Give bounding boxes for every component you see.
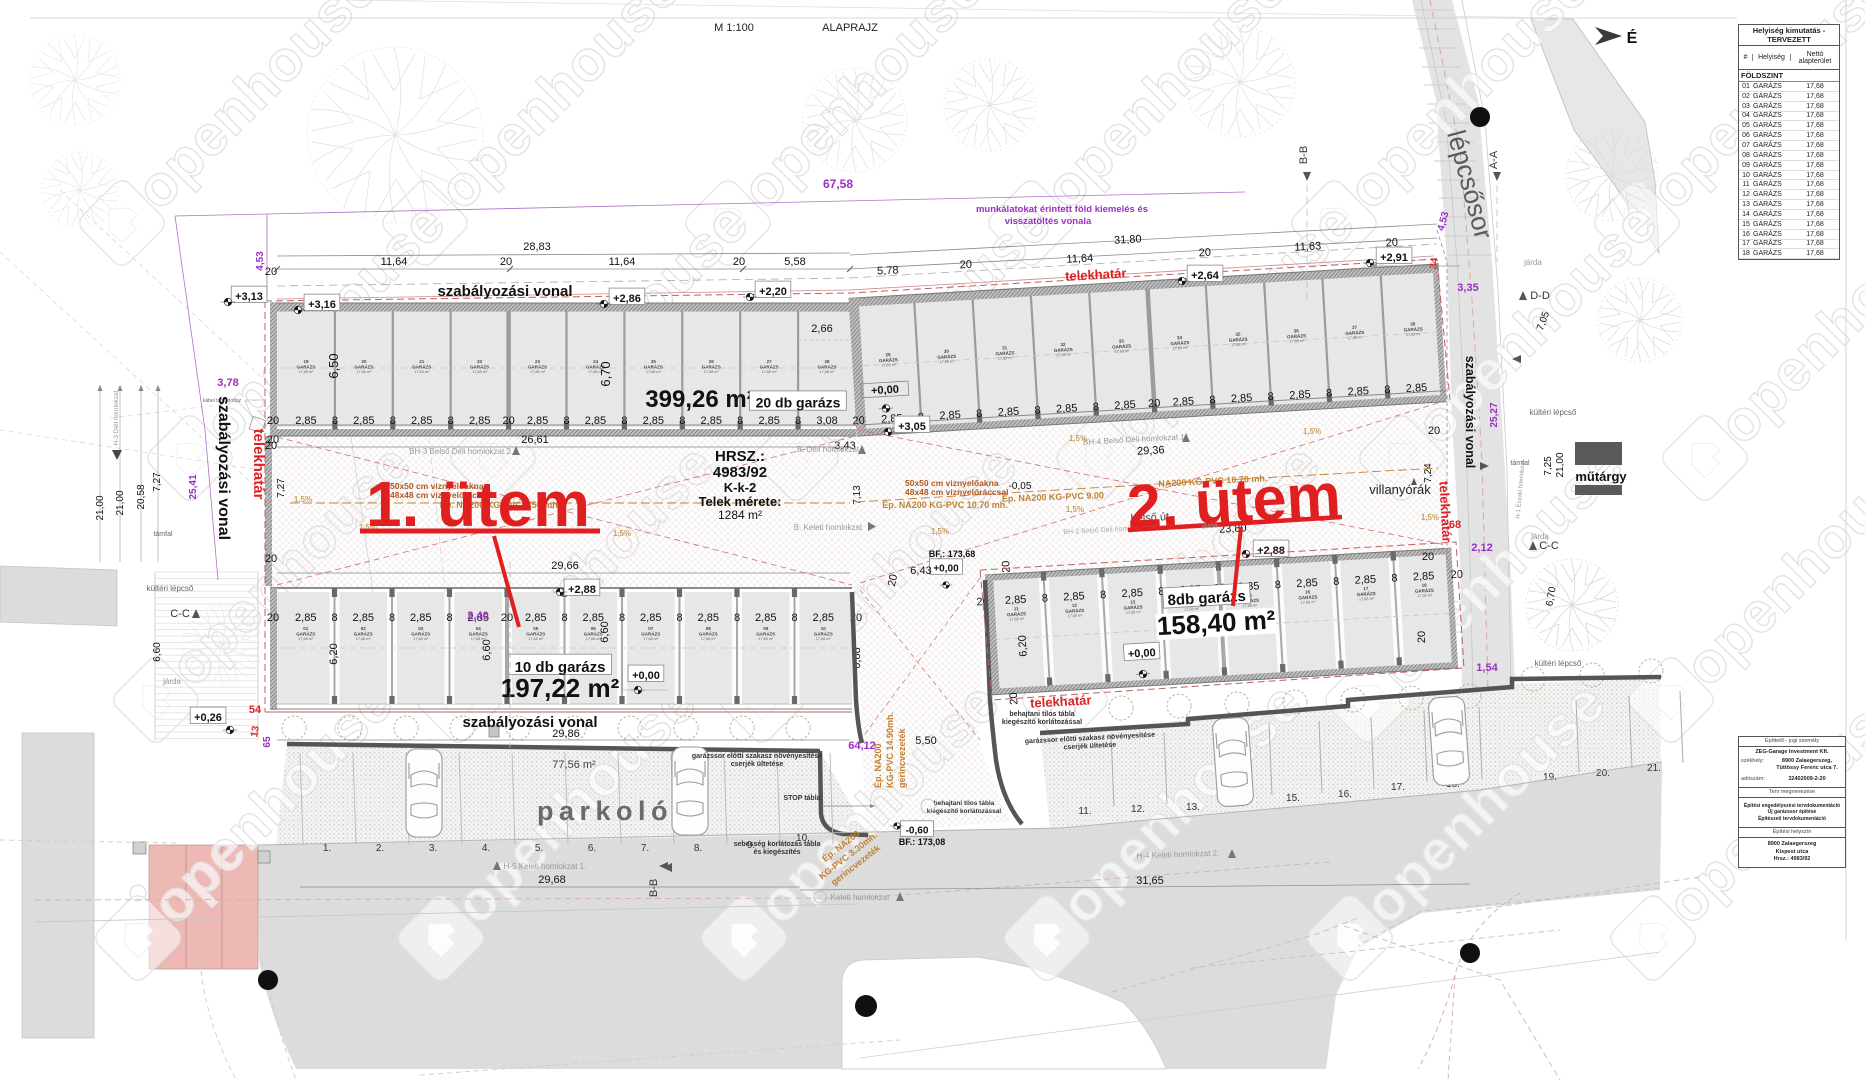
- svg-text:54: 54: [249, 704, 262, 716]
- svg-text:GARÁZS: GARÁZS: [412, 364, 431, 370]
- svg-text:01: 01: [303, 626, 309, 631]
- svg-text:telekhatár: telekhatár: [1030, 692, 1092, 710]
- svg-text:17,68 m²: 17,68 m²: [816, 637, 832, 641]
- svg-text:GARÁZS: GARÁZS: [644, 364, 663, 370]
- svg-text:GARÁZS: GARÁZS: [526, 631, 545, 637]
- svg-text:6,50: 6,50: [326, 353, 341, 378]
- svg-text:3,35: 3,35: [1457, 282, 1478, 294]
- svg-text:2,85: 2,85: [410, 612, 431, 624]
- svg-text:GARÁZS: GARÁZS: [756, 631, 775, 637]
- svg-text:7,24: 7,24: [1423, 463, 1434, 483]
- svg-text:2,85: 2,85: [295, 415, 316, 427]
- svg-text:64,12: 64,12: [848, 740, 876, 752]
- svg-text:3,08: 3,08: [816, 415, 837, 427]
- svg-text:20: 20: [1416, 631, 1428, 643]
- svg-text:1,54: 1,54: [1476, 662, 1498, 674]
- svg-text:17: 17: [1363, 586, 1369, 591]
- svg-text:+3,16: +3,16: [308, 299, 336, 311]
- svg-text:32: 32: [1060, 342, 1066, 347]
- svg-text:17,68 m²: 17,68 m²: [298, 370, 314, 374]
- svg-text:+0,00: +0,00: [1128, 647, 1156, 661]
- svg-text:GARÁZS: GARÁZS: [760, 364, 779, 370]
- svg-text:34: 34: [1428, 257, 1441, 270]
- svg-text:BF.: 173,68: BF.: 173,68: [929, 549, 976, 559]
- svg-text:13: 13: [1130, 599, 1136, 604]
- svg-text:B. Keleti homlokzat: B. Keleti homlokzat: [794, 523, 863, 532]
- svg-text:11.: 11.: [1078, 806, 1091, 817]
- svg-text:B-B: B-B: [1298, 146, 1310, 164]
- svg-text:8: 8: [1093, 401, 1100, 413]
- svg-text:behajtani tilos tábla: behajtani tilos tábla: [1009, 711, 1074, 718]
- svg-text:2,85: 2,85: [1354, 574, 1376, 587]
- svg-text:30: 30: [944, 349, 950, 354]
- svg-text:kültéri lépcső: kültéri lépcső: [1535, 659, 1582, 668]
- svg-text:-0,05: -0,05: [1009, 481, 1032, 492]
- svg-text:8: 8: [679, 415, 685, 427]
- svg-text:Ép. NA200: Ép. NA200: [873, 743, 883, 788]
- svg-text:21: 21: [419, 359, 425, 364]
- svg-text:GARÁZS: GARÁZS: [354, 631, 373, 637]
- svg-text:20: 20: [959, 259, 972, 272]
- svg-text:2,85: 2,85: [1172, 395, 1194, 408]
- svg-text:8: 8: [734, 612, 740, 624]
- svg-text:szabályozási vonal: szabályozási vonal: [462, 714, 597, 731]
- svg-text:20: 20: [733, 256, 745, 268]
- svg-text:07: 07: [648, 626, 654, 631]
- svg-text:11,63: 11,63: [1294, 240, 1321, 253]
- svg-text:11,64: 11,64: [609, 256, 636, 268]
- svg-text:2,85: 2,85: [1231, 392, 1253, 405]
- svg-text:-0,60: -0,60: [906, 826, 929, 837]
- svg-text:parkoló: parkoló: [537, 796, 673, 826]
- svg-text:GARÁZS: GARÁZS: [814, 631, 833, 637]
- svg-text:5.: 5.: [535, 843, 543, 854]
- svg-text:GARÁZS: GARÁZS: [354, 364, 373, 370]
- svg-text:GARÁZS: GARÁZS: [702, 364, 721, 370]
- svg-text:17.: 17.: [1391, 782, 1405, 793]
- svg-text:67,58: 67,58: [823, 177, 853, 191]
- svg-text:H-5 Keleti homlokzat 1.: H-5 Keleti homlokzat 1.: [504, 862, 587, 871]
- svg-text:telekhatár: telekhatár: [250, 429, 267, 500]
- svg-text:8: 8: [1391, 572, 1398, 584]
- svg-text:6,20: 6,20: [1017, 635, 1030, 657]
- svg-text:2,85: 2,85: [469, 415, 490, 427]
- svg-text:GARÁZS: GARÁZS: [528, 364, 547, 370]
- svg-text:támfal: támfal: [153, 531, 173, 538]
- svg-text:8: 8: [1267, 391, 1274, 403]
- svg-text:2,66: 2,66: [811, 323, 832, 335]
- svg-text:20: 20: [1422, 551, 1434, 563]
- svg-text:6,60: 6,60: [152, 642, 163, 662]
- svg-text:GARÁZS: GARÁZS: [296, 364, 315, 370]
- svg-text:GARÁZS: GARÁZS: [296, 631, 315, 637]
- svg-text:20: 20: [267, 612, 279, 624]
- svg-text:járda: járda: [1530, 532, 1549, 541]
- svg-text:08: 08: [706, 626, 712, 631]
- svg-text:2,85: 2,85: [1406, 382, 1428, 395]
- svg-text:kültéri lépcső: kültéri lépcső: [147, 584, 194, 593]
- svg-text:29: 29: [885, 352, 891, 357]
- svg-text:GARÁZS: GARÁZS: [699, 631, 718, 637]
- svg-text:GARÁZS: GARÁZS: [411, 631, 430, 637]
- svg-text:17,68 m²: 17,68 m²: [414, 370, 430, 374]
- svg-text:13.: 13.: [1186, 802, 1200, 813]
- svg-text:2,12: 2,12: [1471, 542, 1492, 554]
- svg-text:7,25: 7,25: [1543, 456, 1554, 476]
- svg-text:8: 8: [1209, 394, 1216, 406]
- svg-text:4983/92: 4983/92: [713, 464, 767, 481]
- svg-text:29,66: 29,66: [551, 560, 579, 572]
- svg-text:járda: járda: [1201, 523, 1218, 531]
- svg-text:8: 8: [791, 612, 797, 624]
- svg-text:2,85: 2,85: [1063, 590, 1085, 603]
- svg-text:8: 8: [1041, 592, 1048, 604]
- svg-text:GARÁZS: GARÁZS: [818, 364, 837, 370]
- svg-text:20: 20: [265, 266, 277, 278]
- svg-text:38: 38: [1410, 321, 1416, 326]
- svg-text:2,85: 2,85: [1289, 389, 1311, 402]
- svg-text:11,64: 11,64: [1066, 252, 1093, 265]
- svg-text:17,68 m²: 17,68 m²: [643, 637, 659, 641]
- svg-text:6.: 6.: [588, 843, 596, 854]
- svg-text:20: 20: [1198, 247, 1211, 260]
- svg-text:garázssor előtti szakasz növén: garázssor előtti szakasz növényesítése: [692, 753, 822, 760]
- svg-text:1,5%: 1,5%: [613, 529, 631, 538]
- svg-text:20: 20: [1428, 425, 1440, 437]
- svg-text:17,68 m²: 17,68 m²: [646, 370, 662, 374]
- svg-text:29,36: 29,36: [1137, 444, 1165, 457]
- svg-text:7.: 7.: [641, 843, 649, 854]
- svg-text:8: 8: [1034, 404, 1041, 416]
- svg-text:6,60: 6,60: [599, 621, 611, 642]
- svg-text:23: 23: [535, 359, 541, 364]
- svg-text:8: 8: [1333, 576, 1340, 588]
- svg-text:2,85: 2,85: [755, 612, 776, 624]
- svg-text:8: 8: [332, 415, 338, 427]
- svg-text:C-C: C-C: [170, 608, 190, 620]
- svg-text:+2,86: +2,86: [613, 293, 641, 305]
- svg-text:telekhatár: telekhatár: [1065, 265, 1127, 283]
- svg-text:77,56 m²: 77,56 m²: [552, 759, 596, 771]
- svg-text:6,60: 6,60: [481, 639, 493, 660]
- svg-text:2,85: 2,85: [353, 415, 374, 427]
- svg-text:26,61: 26,61: [521, 434, 549, 446]
- svg-text:31: 31: [1002, 345, 1008, 350]
- svg-text:HRSZ.:: HRSZ.:: [715, 448, 765, 465]
- svg-text:2,85: 2,85: [997, 406, 1019, 419]
- svg-text:197,22 m²: 197,22 m²: [501, 673, 620, 703]
- svg-text:2,85: 2,85: [643, 415, 664, 427]
- svg-text:5,50: 5,50: [915, 735, 936, 747]
- svg-text:06: 06: [591, 626, 597, 631]
- svg-text:kültéri lépcső: kültéri lépcső: [1530, 408, 1577, 417]
- svg-text:8: 8: [331, 612, 337, 624]
- svg-text:járda: járda: [162, 677, 181, 686]
- svg-text:2,85: 2,85: [411, 415, 432, 427]
- svg-text:8: 8: [1100, 589, 1107, 601]
- svg-text:2,85: 2,85: [527, 415, 548, 427]
- svg-text:2,85: 2,85: [353, 612, 374, 624]
- svg-text:kiegészítő korlátozással: kiegészítő korlátozással: [1002, 719, 1082, 726]
- svg-text:10: 10: [821, 626, 827, 631]
- svg-text:11,64: 11,64: [381, 256, 408, 268]
- svg-text:8: 8: [676, 612, 682, 624]
- svg-text:Keleti homlokzat: Keleti homlokzat: [831, 893, 890, 902]
- svg-text:21.: 21.: [1647, 763, 1661, 774]
- svg-text:17,68 m²: 17,68 m²: [530, 370, 546, 374]
- svg-text:szabályozási vonal: szabályozási vonal: [437, 283, 572, 300]
- svg-text:8: 8: [619, 612, 625, 624]
- svg-text:+2,88: +2,88: [568, 584, 596, 596]
- svg-text:20: 20: [1000, 560, 1013, 573]
- svg-text:8: 8: [737, 415, 743, 427]
- svg-text:20: 20: [267, 415, 279, 427]
- svg-text:D-D: D-D: [1530, 290, 1550, 302]
- svg-text:17,68 m²: 17,68 m²: [820, 370, 836, 374]
- svg-text:05: 05: [533, 626, 539, 631]
- svg-text:1,5%: 1,5%: [1069, 434, 1087, 443]
- svg-text:25,27: 25,27: [1489, 402, 1500, 427]
- svg-text:16: 16: [1305, 589, 1311, 594]
- svg-text:2,85: 2,85: [585, 415, 606, 427]
- svg-text:+0,00: +0,00: [871, 384, 899, 398]
- svg-text:34: 34: [1177, 335, 1183, 340]
- svg-text:2,85: 2,85: [525, 612, 546, 624]
- svg-text:26: 26: [709, 359, 715, 364]
- svg-text:33: 33: [1119, 338, 1125, 343]
- svg-text:2,85: 2,85: [698, 612, 719, 624]
- svg-text:7,27: 7,27: [276, 478, 287, 498]
- svg-text:20: 20: [886, 573, 900, 587]
- svg-text:2,85: 2,85: [939, 409, 961, 422]
- svg-text:20: 20: [361, 359, 367, 364]
- svg-text:8: 8: [448, 415, 454, 427]
- svg-text:20: 20: [500, 256, 512, 268]
- svg-text:+3,13: +3,13: [235, 291, 263, 303]
- svg-text:villanyórák: villanyórák: [1369, 482, 1431, 497]
- svg-text:BF.: 173,08: BF.: 173,08: [899, 837, 946, 847]
- svg-text:19.: 19.: [1543, 772, 1557, 783]
- svg-text:munkálatokat érintett föld kie: munkálatokat érintett föld kiemelés és: [976, 204, 1148, 215]
- svg-text:03: 03: [418, 626, 424, 631]
- svg-text:3.: 3.: [429, 843, 437, 854]
- svg-text:20: 20: [1148, 397, 1161, 410]
- svg-text:17,68 m²: 17,68 m²: [472, 370, 488, 374]
- svg-text:8: 8: [1384, 384, 1391, 396]
- svg-text:2,85: 2,85: [1114, 399, 1136, 412]
- svg-text:+2,91: +2,91: [1380, 252, 1408, 264]
- svg-text:6,43: 6,43: [910, 565, 931, 577]
- svg-text:19: 19: [303, 359, 309, 364]
- svg-text:2,85: 2,85: [1296, 577, 1318, 590]
- svg-text:A-A: A-A: [1488, 150, 1500, 169]
- svg-text:gerincvezeték: gerincvezeték: [897, 727, 907, 788]
- svg-text:7,27: 7,27: [152, 472, 163, 492]
- svg-text:65: 65: [262, 736, 273, 748]
- svg-text:kiegészítő korlátozással: kiegészítő korlátozással: [927, 808, 1002, 815]
- svg-text:20: 20: [501, 612, 513, 624]
- svg-text:behajtani tilos tábla: behajtani tilos tábla: [934, 800, 995, 807]
- svg-text:ALAPRAJZ: ALAPRAJZ: [822, 22, 878, 34]
- svg-text:2,85: 2,85: [758, 415, 779, 427]
- svg-text:1.: 1.: [323, 843, 331, 854]
- svg-text:17,68 m²: 17,68 m²: [704, 370, 720, 374]
- svg-text:műtárgy: műtárgy: [1575, 469, 1627, 484]
- svg-text:18: 18: [1421, 583, 1427, 588]
- svg-text:telekhatár: telekhatár: [1436, 481, 1454, 543]
- svg-text:és kiegészítés: és kiegészítés: [753, 849, 800, 856]
- svg-text:2,85: 2,85: [1056, 402, 1078, 415]
- svg-text:6,70: 6,70: [598, 361, 613, 386]
- svg-text:2,85: 2,85: [1413, 570, 1435, 583]
- svg-text:11: 11: [1014, 606, 1020, 611]
- svg-text:2,85: 2,85: [813, 612, 834, 624]
- svg-text:B. Déli homlokzat: B. Déli homlokzat: [797, 445, 860, 454]
- svg-text:31,65: 31,65: [1136, 875, 1164, 887]
- svg-text:8: 8: [561, 612, 567, 624]
- svg-text:1,5%: 1,5%: [931, 527, 949, 536]
- svg-text:H-3 Déli homlokzat: H-3 Déli homlokzat: [113, 390, 120, 445]
- svg-text:BH-3 Belső Déli homlokzat 2: BH-3 Belső Déli homlokzat 2: [409, 447, 511, 456]
- svg-text:8: 8: [795, 415, 801, 427]
- svg-text:17,68 m²: 17,68 m²: [356, 370, 372, 374]
- svg-text:27: 27: [767, 359, 773, 364]
- svg-text:22: 22: [477, 359, 483, 364]
- svg-text:+2,88: +2,88: [1257, 545, 1285, 557]
- svg-text:35: 35: [1235, 332, 1241, 337]
- svg-text:17,68 m²: 17,68 m²: [356, 637, 372, 641]
- svg-text:12.: 12.: [1131, 804, 1145, 815]
- svg-text:48x48 cm viznyelőráccsal: 48x48 cm viznyelőráccsal: [905, 487, 1009, 497]
- svg-text:28,83: 28,83: [523, 241, 551, 253]
- svg-text:8: 8: [389, 612, 395, 624]
- svg-text:21,00: 21,00: [1555, 452, 1566, 477]
- svg-text:4.: 4.: [482, 843, 490, 854]
- svg-text:09: 09: [763, 626, 769, 631]
- svg-text:6,70: 6,70: [1544, 586, 1558, 608]
- svg-text:M 1:100: M 1:100: [714, 22, 754, 34]
- svg-text:20 db garázs: 20 db garázs: [756, 395, 841, 411]
- svg-text:17,68 m²: 17,68 m²: [298, 637, 314, 641]
- svg-text:17,68 m²: 17,68 m²: [701, 637, 717, 641]
- svg-text:5,78: 5,78: [877, 264, 899, 277]
- svg-text:36: 36: [1294, 328, 1300, 333]
- svg-text:15.: 15.: [1286, 793, 1300, 804]
- svg-text:cserjék ültetése: cserjék ültetése: [731, 761, 784, 768]
- svg-text:8: 8: [621, 415, 627, 427]
- svg-text:04: 04: [476, 626, 482, 631]
- svg-text:37: 37: [1352, 325, 1358, 330]
- svg-text:8: 8: [1275, 579, 1282, 591]
- svg-text:Ép. NA200 KG-PVC 10.70 mh.: Ép. NA200 KG-PVC 10.70 mh.: [882, 500, 1008, 510]
- svg-text:2,85: 2,85: [1347, 385, 1369, 398]
- svg-text:+0,00: +0,00: [933, 564, 959, 575]
- svg-text:17,68 m²: 17,68 m²: [528, 637, 544, 641]
- svg-text:399,26 m²: 399,26 m²: [645, 386, 754, 413]
- svg-text:21,00: 21,00: [95, 495, 106, 520]
- svg-text:5,58: 5,58: [784, 256, 805, 268]
- svg-text:2,85: 2,85: [1005, 594, 1027, 607]
- svg-text:28: 28: [825, 359, 831, 364]
- svg-text:8: 8: [1326, 387, 1333, 399]
- svg-text:8: 8: [563, 415, 569, 427]
- svg-text:B-B: B-B: [648, 879, 660, 897]
- svg-text:1284 m²: 1284 m²: [718, 508, 762, 522]
- svg-text:2,85: 2,85: [1121, 587, 1143, 600]
- svg-text:8.: 8.: [694, 843, 702, 854]
- svg-text:21,00: 21,00: [115, 490, 126, 515]
- svg-text:GARÁZS: GARÁZS: [470, 364, 489, 370]
- svg-text:GARÁZS: GARÁZS: [641, 631, 660, 637]
- svg-text:É: É: [1627, 28, 1638, 47]
- svg-text:1,5%: 1,5%: [1421, 513, 1439, 522]
- svg-text:29,68: 29,68: [538, 874, 566, 886]
- svg-text:20.: 20.: [1596, 768, 1610, 779]
- svg-text:31,80: 31,80: [1114, 233, 1142, 246]
- svg-text:1,5%: 1,5%: [1303, 427, 1321, 436]
- svg-text:járda: járda: [1523, 258, 1542, 267]
- svg-text:C-C: C-C: [1539, 540, 1559, 552]
- svg-text:8: 8: [976, 408, 983, 420]
- svg-text:2,85: 2,85: [640, 612, 661, 624]
- svg-text:20: 20: [852, 415, 865, 428]
- svg-text:STOP tábla: STOP tábla: [783, 795, 820, 802]
- svg-text:+0,26: +0,26: [194, 712, 222, 724]
- svg-text:visszatöltés vonala: visszatöltés vonala: [1005, 216, 1092, 227]
- svg-text:+3,05: +3,05: [898, 421, 926, 433]
- svg-text:2,85: 2,85: [295, 612, 316, 624]
- svg-text:17,68 m²: 17,68 m²: [413, 637, 429, 641]
- svg-text:8: 8: [390, 415, 396, 427]
- svg-text:2.: 2.: [376, 843, 384, 854]
- svg-text:6,20: 6,20: [328, 643, 340, 664]
- svg-text:Telek mérete:: Telek mérete:: [699, 494, 782, 509]
- svg-text:1,5%: 1,5%: [1066, 505, 1084, 514]
- svg-text:szabályozási vonal: szabályozási vonal: [1463, 356, 1477, 469]
- svg-text:1,5%: 1,5%: [294, 495, 312, 504]
- svg-text:13: 13: [249, 725, 262, 738]
- svg-text:3,78: 3,78: [217, 377, 238, 389]
- svg-text:20: 20: [265, 553, 277, 565]
- svg-text:+2,64: +2,64: [1191, 270, 1220, 282]
- svg-text:16.: 16.: [1338, 789, 1352, 800]
- svg-text:KG-PVC 14.90mh.: KG-PVC 14.90mh.: [885, 712, 895, 788]
- svg-text:17,68 m²: 17,68 m²: [758, 637, 774, 641]
- svg-text:2,40: 2,40: [467, 610, 488, 622]
- svg-text:sebesség korlátozás tábla: sebesség korlátozás tábla: [734, 841, 821, 848]
- svg-text:02: 02: [361, 626, 367, 631]
- svg-text:szabályozási vonal: szabályozási vonal: [215, 396, 232, 540]
- svg-text:+2,20: +2,20: [759, 286, 787, 298]
- svg-text:17,68 m²: 17,68 m²: [762, 370, 778, 374]
- svg-text:20: 20: [1450, 568, 1463, 581]
- svg-text:K-k-2: K-k-2: [724, 480, 757, 495]
- svg-text:12: 12: [1072, 603, 1078, 608]
- svg-text:25,41: 25,41: [188, 474, 199, 499]
- svg-text:20: 20: [267, 434, 279, 446]
- svg-text:20,58: 20,58: [136, 484, 147, 509]
- svg-text:GARÁZS: GARÁZS: [469, 631, 488, 637]
- svg-text:2,85: 2,85: [701, 415, 722, 427]
- svg-text:8: 8: [446, 612, 452, 624]
- svg-text:+0,00: +0,00: [632, 670, 660, 682]
- svg-text:25: 25: [651, 359, 657, 364]
- svg-text:20: 20: [502, 415, 514, 427]
